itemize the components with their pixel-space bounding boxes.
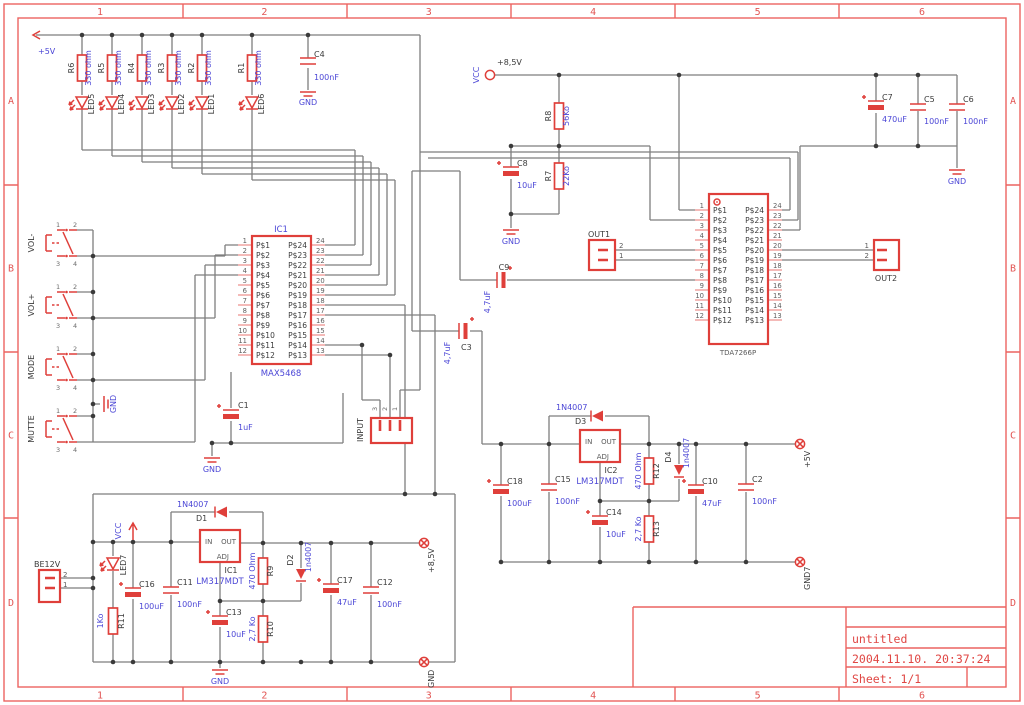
tda-right-nums-2: 22 <box>773 222 782 230</box>
pin-num: 2 <box>619 242 623 250</box>
ref-label: R13 <box>652 521 661 537</box>
ref-label: C5 <box>924 95 935 104</box>
gnd-symbol[interactable]: GND <box>299 92 317 107</box>
value-label: 330 ohm <box>204 50 213 86</box>
ref-label: R11 <box>117 613 126 629</box>
net-label: +5V <box>38 47 56 56</box>
value-label: 1Ko <box>96 613 105 628</box>
ic1-left-names-10: P$11 <box>256 341 275 350</box>
tda-right-names-3: P$21 <box>745 236 764 245</box>
switch-label: MUTTE <box>27 415 36 442</box>
value-label: 100uF <box>139 602 164 611</box>
ic1-right-names-6: P$18 <box>288 301 307 310</box>
frame-columns-bottom-5: 6 <box>919 691 925 702</box>
capacitor-c13[interactable]: C1310uF <box>206 608 246 639</box>
title-block: untitled 2004.11.10. 20:37:24 Sheet: 1/1 <box>633 607 1006 687</box>
frame-columns-top-3: 4 <box>590 7 596 18</box>
value-label: 100nF <box>924 117 949 126</box>
tda-left-nums-10: 11 <box>695 302 704 310</box>
resistor-r5[interactable]: R5330 ohm <box>97 50 123 86</box>
ic1-right-names-3: P$21 <box>288 271 307 280</box>
frame-rows-left-1: B <box>8 263 14 274</box>
led-led7[interactable]: LED7 <box>100 555 128 576</box>
pin-num: 4 <box>73 446 77 454</box>
capacitor-c16[interactable]: C16100uF <box>119 580 164 611</box>
ic1-right-names-8: P$16 <box>288 321 307 330</box>
tda-right-nums-11: 13 <box>773 312 782 320</box>
ic1-right-names-2: P$22 <box>288 261 307 270</box>
ref-label: C15 <box>555 475 571 484</box>
ic1-right-nums-11: 13 <box>316 347 325 355</box>
ic1-right-nums-4: 20 <box>316 277 325 285</box>
pin-num: 2 <box>73 283 77 291</box>
tda-right-names-5: P$19 <box>745 256 764 265</box>
value-label: 56Ko <box>562 106 571 126</box>
ic1-right-nums-2: 22 <box>316 257 325 265</box>
ic-tda7266p[interactable]: TDA7266P 123456789101112 242322212019181… <box>695 194 782 357</box>
ref-label: C14 <box>606 508 622 517</box>
pin-num: 2 <box>63 571 67 579</box>
ic1-right-nums-0: 24 <box>316 237 325 245</box>
value-label: 1N4007 <box>177 500 208 509</box>
value-label: 1N4007 <box>556 403 587 412</box>
ic1-left-nums-11: 12 <box>238 347 247 355</box>
pin-num: 1 <box>56 221 60 229</box>
value-label: 330 ohm <box>254 50 263 86</box>
resistor-r8[interactable]: R856Ko <box>544 103 571 129</box>
capacitor-c18[interactable]: C18100uF <box>487 477 532 508</box>
ref-label: C3 <box>461 343 472 352</box>
ref-label: LED1 <box>207 94 216 115</box>
value-label: 1n4007 <box>682 438 691 469</box>
value-label: 2,7 Ko <box>634 516 643 541</box>
value-label: 100nF <box>963 117 988 126</box>
capacitor-c14[interactable]: C1410uF <box>586 508 626 539</box>
tda-left-names-10: P$11 <box>713 306 732 315</box>
value-label: 100nF <box>314 73 339 82</box>
tda-left-names-8: P$9 <box>713 286 727 295</box>
resistor-r13[interactable]: R132,7 Ko <box>634 516 661 542</box>
tda-left-names-2: P$3 <box>713 226 727 235</box>
tda-left-nums-11: 12 <box>695 312 704 320</box>
frame-columns-top-2: 3 <box>426 7 432 18</box>
ref-label: D4 <box>664 451 673 462</box>
ref-label: IC1 <box>274 225 288 235</box>
ic1-left-names-7: P$8 <box>256 311 270 320</box>
value-label: 330 ohm <box>174 50 183 86</box>
schematic-canvas: 123456 123456 ABCD ABCD untitled 2004.11… <box>0 0 1024 705</box>
title-block-sheet: Sheet: 1/1 <box>852 672 921 686</box>
switch-label: MODE <box>27 355 36 379</box>
ic1-right-nums-9: 15 <box>316 327 325 335</box>
frame-rows-right-3: D <box>1010 598 1016 609</box>
tda-left-nums-3: 4 <box>700 232 704 240</box>
tda-right-names-9: P$15 <box>745 296 764 305</box>
ref-label: C12 <box>377 578 393 587</box>
value-label: 100nF <box>555 497 580 506</box>
gnd-label: GND <box>203 465 221 474</box>
gnd-label: GND <box>109 395 118 413</box>
ref-label: C7 <box>882 93 893 102</box>
connector-be12v[interactable]: BE12V 2 1 <box>34 560 67 602</box>
tda-left-nums-8: 9 <box>700 282 704 290</box>
pin-num: 2 <box>381 407 389 411</box>
pin-num: 3 <box>56 322 60 330</box>
ic1-right-names-9: P$15 <box>288 331 307 340</box>
value-label: 470uF <box>882 115 907 124</box>
capacitor-c10[interactable]: C1047uF <box>682 477 722 508</box>
ref-label: C4 <box>314 50 325 59</box>
vcc-label: VCC <box>472 66 481 83</box>
ic1-right-nums-5: 19 <box>316 287 325 295</box>
ic1-left-nums-9: 10 <box>238 327 247 335</box>
value-label: 330 ohm <box>144 50 153 86</box>
capacitor-c5[interactable]: C5100nF <box>910 95 949 126</box>
switch-label: VOL- <box>27 233 36 252</box>
value-label: 10uF <box>606 530 626 539</box>
tda-left-nums-4: 5 <box>700 242 704 250</box>
switch-mutte[interactable]: MUTTE1234 <box>27 407 77 454</box>
value-label: 47uF <box>702 499 722 508</box>
tda-right-nums: 242322212019181716151413 <box>773 202 782 320</box>
tda-right-names-6: P$18 <box>745 266 764 275</box>
capacitor-c2[interactable]: C2100nF <box>738 475 777 506</box>
switch-label: VOL+ <box>27 294 36 317</box>
ic1-left-nums-1: 2 <box>243 247 247 255</box>
ref-label: R7 <box>544 171 553 182</box>
ic1-left-names-9: P$10 <box>256 331 275 340</box>
gnd-symbol[interactable]: GND <box>948 170 966 186</box>
pin-label: IN <box>585 438 592 446</box>
tda-right-nums-6: 18 <box>773 262 782 270</box>
capacitor-c1[interactable]: C11uF <box>217 401 253 432</box>
pin-num: 4 <box>73 384 77 392</box>
ref-label: R5 <box>97 63 106 74</box>
capacitor-c3[interactable]: C34,7uF <box>443 317 474 364</box>
tda-left-names-4: P$5 <box>713 246 727 255</box>
ref-label: C18 <box>507 477 523 486</box>
ref-label: R2 <box>187 63 196 74</box>
frame-columns-top-0: 1 <box>97 7 103 18</box>
ref-label: C6 <box>963 95 974 104</box>
pad-label: GND7 <box>803 567 812 590</box>
switch-mode[interactable]: MODE1234 <box>27 345 77 392</box>
resistor-r9[interactable]: R9470 Ohm <box>248 552 275 589</box>
ic1-right-nums-7: 17 <box>316 307 325 315</box>
capacitor-c15[interactable]: C15100nF <box>541 475 580 506</box>
ic1-right-nums-8: 16 <box>316 317 325 325</box>
pin-num: 3 <box>56 260 60 268</box>
pin-num: 3 <box>56 446 60 454</box>
resistor-r6[interactable]: R6330 ohm <box>67 50 93 86</box>
ic1-left-nums-8: 9 <box>243 317 247 325</box>
gnd-symbol[interactable]: GND <box>211 670 229 686</box>
pin-num: 1 <box>56 407 60 415</box>
tda-left-names-6: P$7 <box>713 266 727 275</box>
pin-label: OUT <box>601 438 617 446</box>
tda-left-nums-6: 7 <box>700 262 704 270</box>
ref-label: R9 <box>266 566 275 577</box>
resistor-r2[interactable]: R2330 ohm <box>187 50 213 86</box>
ic1-left-nums-6: 7 <box>243 297 247 305</box>
tda-right-names-2: P$22 <box>745 226 764 235</box>
diode-d2[interactable]: D21n4007 <box>286 542 313 581</box>
tda-right-nums-7: 17 <box>773 272 782 280</box>
capacitor-c12[interactable]: C12100nF <box>363 578 402 609</box>
pin-num: 3 <box>371 407 379 411</box>
tda-right-nums-3: 21 <box>773 232 782 240</box>
drawing-frame: 123456 123456 ABCD ABCD untitled 2004.11… <box>4 4 1020 702</box>
ref-label: R6 <box>67 63 76 74</box>
capacitor-c6[interactable]: C6100nF <box>949 95 988 126</box>
ref-label: C16 <box>139 580 155 589</box>
tda-right-names-11: P$13 <box>745 316 764 325</box>
tda-left-names-11: P$12 <box>713 316 732 325</box>
ref-label: R1 <box>237 63 246 74</box>
tda-right-nums-9: 15 <box>773 292 782 300</box>
ref-label: R8 <box>544 111 553 122</box>
tda-right-names-10: P$14 <box>745 306 764 315</box>
tda-left-nums-7: 8 <box>700 272 704 280</box>
part-label: LM317MDT <box>576 477 624 487</box>
vcc-arrow[interactable]: VCC <box>114 522 137 540</box>
pad-label: +5V <box>803 450 812 468</box>
resistor-r7[interactable]: R722Ko <box>544 163 571 189</box>
tda-left-names-3: P$4 <box>713 236 727 245</box>
ic1-left-nums-2: 3 <box>243 257 247 265</box>
ic-lm317-ic1[interactable]: IN OUT ADJ IC1 LM317MDT <box>196 530 244 587</box>
pin-num: 2 <box>73 345 77 353</box>
ic1-left-names-1: P$2 <box>256 251 270 260</box>
value-label: 47uF <box>337 598 357 607</box>
value-label: 100nF <box>752 497 777 506</box>
ref-label: LED5 <box>87 94 96 115</box>
resistor-r10[interactable]: R102,7 Ko <box>248 616 275 642</box>
pin-label: OUT <box>221 538 237 546</box>
ic1-left-names-11: P$12 <box>256 351 275 360</box>
ic1-left-names-4: P$5 <box>256 281 270 290</box>
pin-num: 4 <box>73 322 77 330</box>
connector-label: INPUT <box>356 418 365 442</box>
frame-columns-bottom-4: 5 <box>755 691 761 702</box>
gnd-symbol[interactable]: GND <box>502 230 520 246</box>
value-label: 470 Ohm <box>248 552 257 589</box>
tda-right-names-1: P$23 <box>745 216 764 225</box>
gnd-symbol[interactable]: GND <box>203 458 221 474</box>
ic1-right-names-1: P$23 <box>288 251 307 260</box>
pin-num: 1 <box>56 345 60 353</box>
ic1-left-names-5: P$6 <box>256 291 270 300</box>
tda-right-nums-0: 24 <box>773 202 782 210</box>
ic1-left-names-2: P$3 <box>256 261 270 270</box>
value-label: 330 ohm <box>84 50 93 86</box>
frame-columns-top-1: 2 <box>261 7 267 18</box>
ic1-right-names-11: P$13 <box>288 351 307 360</box>
gnd-symbol[interactable]: GND <box>104 395 118 413</box>
switch-vol-minus[interactable]: VOL-1234 <box>27 221 77 268</box>
ic1-right-names-10: P$14 <box>288 341 307 350</box>
value-label: 22Ko <box>562 166 571 186</box>
tda-right-names-7: P$17 <box>745 276 764 285</box>
capacitor-c4[interactable]: C4100nF <box>300 50 339 82</box>
ic1-right-names-5: P$19 <box>288 291 307 300</box>
pin-num: 1 <box>619 252 623 260</box>
ref-label: LED7 <box>119 555 128 576</box>
value-label: 100nF <box>377 600 402 609</box>
ic1-right-names-4: P$20 <box>288 281 307 290</box>
gnd-label: GND <box>948 177 966 186</box>
ic1-left-names-0: P$1 <box>256 241 270 250</box>
pin-label: ADJ <box>597 453 609 461</box>
frame-columns-bottom-0: 1 <box>97 691 103 702</box>
wires <box>36 35 957 668</box>
ic1-left-nums-7: 8 <box>243 307 247 315</box>
pin-num: 3 <box>56 384 60 392</box>
gnd-label: GND <box>211 677 229 686</box>
ref-label: IC1 <box>224 566 237 575</box>
frame-columns-top-5: 6 <box>919 7 925 18</box>
ic-max5468[interactable]: IC1 MAX5468 123456789101112 242322212019… <box>238 225 325 379</box>
ic1-left-nums-5: 6 <box>243 287 247 295</box>
capacitor-c9[interactable]: C94,7uF <box>483 263 512 313</box>
frame-rows-left-3: D <box>8 598 14 609</box>
part-label: TDA7266P <box>719 349 756 357</box>
ic1-right-nums-3: 21 <box>316 267 325 275</box>
tda-right-names: P$24P$23P$22P$21P$20P$19P$18P$17P$16P$15… <box>745 206 764 325</box>
tda-left-nums-2: 3 <box>700 222 704 230</box>
ic1-right-nums-1: 23 <box>316 247 325 255</box>
resistor-r3[interactable]: R3330 ohm <box>157 50 183 86</box>
ic1-right-nums-10: 14 <box>316 337 325 345</box>
value-label: 2,7 Ko <box>248 616 257 641</box>
connector-label: OUT2 <box>875 274 897 283</box>
ref-label: C2 <box>752 475 763 484</box>
frame-columns-top-4: 5 <box>755 7 761 18</box>
tda-right-nums-5: 19 <box>773 252 782 260</box>
pin-label: IN <box>205 538 212 546</box>
value-label: 100nF <box>177 600 202 609</box>
ref-label: R3 <box>157 63 166 74</box>
value-label: 1n4007 <box>304 542 313 573</box>
pin-num: 4 <box>73 260 77 268</box>
switch-vol-plus[interactable]: VOL+1234 <box>27 283 77 330</box>
pin-label: ADJ <box>217 553 229 561</box>
ic1-left-nums-3: 4 <box>243 267 247 275</box>
connector-label: OUT1 <box>588 230 610 239</box>
frame-rows-right-0: A <box>1010 96 1016 107</box>
ref-label: C1 <box>238 401 249 410</box>
capacitor-c17[interactable]: C1747uF <box>317 576 357 607</box>
tda-left-nums-1: 2 <box>700 212 704 220</box>
ref-label: C10 <box>702 477 718 486</box>
title-block-project: untitled <box>852 632 907 646</box>
tda-right-nums-1: 23 <box>773 212 782 220</box>
ref-label: R12 <box>652 463 661 479</box>
ref-label: C8 <box>517 159 528 168</box>
tda-left-nums-9: 10 <box>695 292 704 300</box>
tda-left-nums-5: 6 <box>700 252 704 260</box>
ref-label: D2 <box>286 554 295 565</box>
frame-columns-bottom-3: 4 <box>590 691 596 702</box>
power-pad-85v[interactable]: +8,5V <box>419 538 436 573</box>
ic1-right-names: P$24P$23P$22P$21P$20P$19P$18P$17P$16P$15… <box>288 241 307 360</box>
frame-rows-left-0: A <box>8 96 14 107</box>
resistor-r12[interactable]: R12470 Ohm <box>634 452 661 489</box>
pin-num: 1 <box>865 242 869 250</box>
value-label: 10uF <box>226 630 246 639</box>
connector-input[interactable]: INPUT 3 2 1 <box>356 407 412 443</box>
connector-out2[interactable]: OUT2 1 2 <box>865 240 899 283</box>
value-label: 4,7uF <box>483 290 492 313</box>
resistor-r4[interactable]: R4330 ohm <box>127 50 153 86</box>
power-pad-gnd7[interactable]: GND7 <box>795 557 812 590</box>
power-pad-5v[interactable]: +5V <box>795 439 812 468</box>
pin-num: 2 <box>865 252 869 260</box>
pin-num: 2 <box>73 407 77 415</box>
ic1-right-nums: 242322212019181716151413 <box>316 237 325 355</box>
tda-left-names-9: P$10 <box>713 296 732 305</box>
frame-rows-right-2: C <box>1010 431 1016 442</box>
frame-rows-right-1: B <box>1010 263 1016 274</box>
diode-d3[interactable]: 1N4007D3 <box>556 403 603 426</box>
resistor-r1[interactable]: R1330 ohm <box>237 50 263 86</box>
ref-label: C11 <box>177 578 193 587</box>
gnd-label: GND <box>502 237 520 246</box>
ref-label: LED6 <box>257 94 266 115</box>
tda-right-nums-8: 16 <box>773 282 782 290</box>
pad-label: GND <box>427 670 436 688</box>
ref-label: C9 <box>499 263 510 272</box>
ic1-left-nums-10: 11 <box>238 337 247 345</box>
ic1-right-names-0: P$24 <box>288 241 307 250</box>
tda-left-names-7: P$8 <box>713 276 727 285</box>
connector-label: BE12V <box>34 560 61 569</box>
tda-right-nums-10: 14 <box>773 302 782 310</box>
ref-label: IC2 <box>604 466 617 475</box>
capacitor-c7[interactable]: C7470uF <box>862 93 907 124</box>
ic1-left-names-3: P$4 <box>256 271 270 280</box>
ref-label: LED3 <box>147 94 156 115</box>
tda-left-names-5: P$6 <box>713 256 727 265</box>
tda-right-names-0: P$24 <box>745 206 764 215</box>
tda-right-nums-4: 20 <box>773 242 782 250</box>
pin-num: 1 <box>63 581 67 589</box>
tda-left-nums-0: 1 <box>700 202 704 210</box>
ic1-right-names-7: P$17 <box>288 311 307 320</box>
pad-label: +8,5V <box>427 548 436 573</box>
value-label: 10uF <box>517 181 537 190</box>
net-label: +8,5V <box>497 58 522 67</box>
pin-num: 1 <box>56 283 60 291</box>
ref-label: D1 <box>196 514 207 523</box>
value-label: 1uF <box>238 423 253 432</box>
part-label: LM317MDT <box>196 577 244 587</box>
ref-label: LED2 <box>177 94 186 115</box>
ic-lm317-ic2[interactable]: IN OUT ADJ IC2 LM317MDT <box>576 430 624 487</box>
ref-label: C13 <box>226 608 242 617</box>
ic1-right-nums-6: 18 <box>316 297 325 305</box>
ref-label: C17 <box>337 576 353 585</box>
frame-columns-bottom-1: 2 <box>261 691 267 702</box>
pin-num: 2 <box>73 221 77 229</box>
capacitor-c8[interactable]: C810uF <box>497 159 537 190</box>
frame-rows-left-2: C <box>8 431 14 442</box>
tda-right-names-8: P$16 <box>745 286 764 295</box>
vcc-terminal[interactable]: VCC+8,5V <box>472 58 522 83</box>
value-label: 330 ohm <box>114 50 123 86</box>
ic1-left-nums-4: 5 <box>243 277 247 285</box>
resistor-r11[interactable]: R111Ko <box>96 608 126 634</box>
